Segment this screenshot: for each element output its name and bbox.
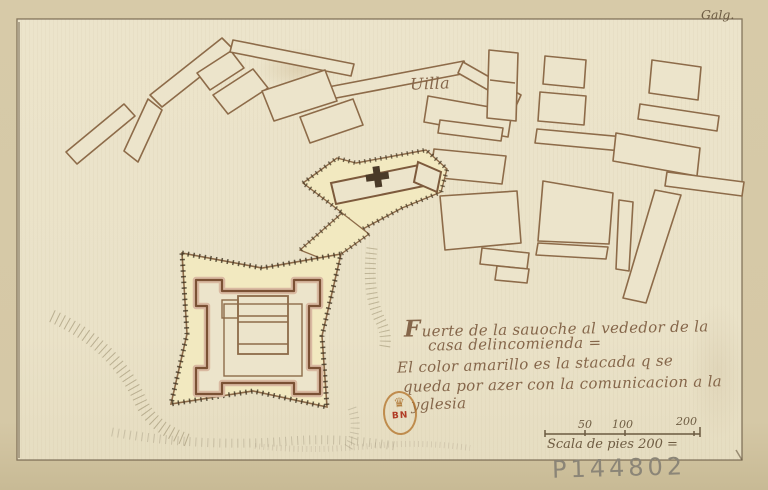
hatch-slope-arc [52, 316, 190, 441]
village-building [613, 133, 700, 176]
shelfmark-number: P144802 [552, 452, 687, 484]
village-building [480, 248, 529, 269]
village-building [649, 60, 701, 100]
archive-mark: Galg. [701, 7, 734, 22]
caption-initial: F [404, 315, 421, 342]
map-scan-page: Galg. Uilla Fuerte de la sauoche al vede… [0, 0, 768, 490]
scale-caption: Scala de pies 200 = [547, 437, 678, 452]
caption-line-2: casa delincomienda = [428, 333, 602, 354]
village-building [495, 266, 529, 283]
village-building [487, 50, 518, 121]
villa-label: Uilla [410, 73, 451, 93]
church-compound [303, 150, 447, 231]
village-building [66, 104, 135, 164]
hatch-faint-scribble [255, 444, 470, 449]
village-building [665, 172, 744, 196]
scale-tick-label-200: 200 [676, 415, 697, 428]
star-fort [171, 253, 341, 407]
hatch-slope-right [370, 248, 385, 350]
village-building [230, 40, 354, 76]
scale-tick-label-50: 50 [578, 418, 592, 431]
stamp-letters: BN [385, 410, 416, 422]
village-building [124, 99, 162, 162]
hatch-slope-base [112, 432, 395, 446]
village-building [616, 200, 633, 271]
village-building [638, 104, 719, 131]
village-building [536, 243, 608, 259]
village-building [538, 92, 586, 125]
village-building [538, 181, 613, 244]
scale-tick-label-100: 100 [612, 418, 633, 431]
caption-line-5: yglesia [411, 394, 467, 414]
frame-corner-mark [736, 450, 742, 460]
village-building [440, 191, 521, 250]
village-building [543, 56, 586, 88]
